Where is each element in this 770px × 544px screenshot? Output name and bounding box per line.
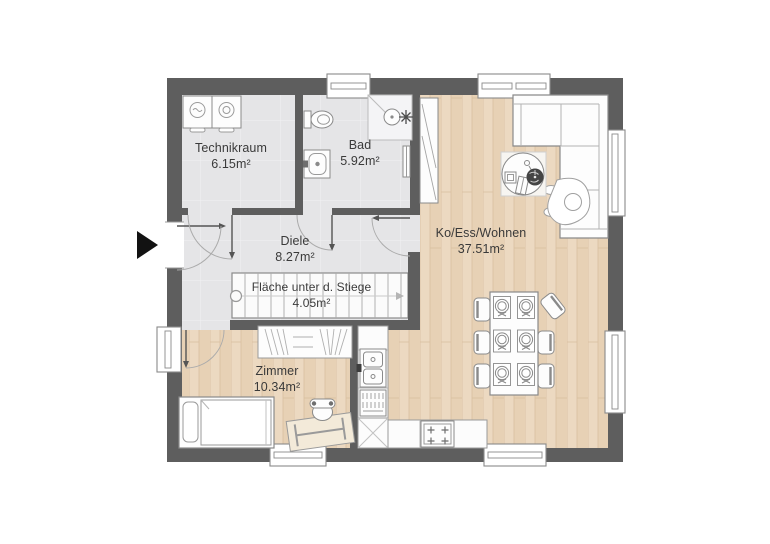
plant-icon <box>527 169 544 186</box>
place-setting-icon <box>518 297 535 319</box>
toilet-icon <box>304 111 333 128</box>
place-setting-icon <box>518 330 535 352</box>
wall-diele-seg2 <box>232 208 297 215</box>
towel-radiator-icon <box>403 146 410 177</box>
wall-stiege-wohnen <box>408 252 420 330</box>
floor-plan-canvas <box>0 0 770 544</box>
wall-diele-seg1 <box>182 208 188 215</box>
wall-top <box>167 78 623 95</box>
window-icon-bad-top <box>327 74 370 98</box>
chair-icon <box>474 364 490 388</box>
chair-icon <box>538 364 554 388</box>
window-icon-wohnen-bottom <box>484 444 546 466</box>
floor-plan: Technikraum 6.15m² Bad 5.92m² Diele 8.27… <box>0 0 770 544</box>
washbasin-icon <box>303 150 330 178</box>
corner-cabinet-icon <box>358 418 388 448</box>
place-setting-icon <box>494 364 511 386</box>
technikraum-fixtures <box>183 96 241 132</box>
dining-set <box>474 292 567 395</box>
chair-icon <box>474 331 490 354</box>
tall-cabinet-icon <box>420 98 438 203</box>
entrance-arrow-icon <box>137 231 158 259</box>
wall-technikraum-bad <box>295 95 303 215</box>
bed-icon <box>179 397 274 448</box>
stairs-start-circle <box>231 291 242 302</box>
place-setting-icon <box>518 364 535 386</box>
kitchen-sink-icon <box>357 349 387 387</box>
window-icon-zimmer-left <box>157 327 181 372</box>
dryer-icon <box>212 96 241 132</box>
dishwasher-icon <box>360 390 386 416</box>
floors <box>182 95 608 448</box>
cooktop-icon <box>421 421 454 447</box>
shower-icon <box>368 95 413 140</box>
wall-bottom <box>167 448 623 462</box>
coffee-table-icon <box>501 152 546 196</box>
window-icon-wohnen-right-lower <box>605 331 625 413</box>
washing-machine-icon <box>183 96 212 132</box>
wall-diele-seg3 <box>332 208 420 215</box>
chair-icon <box>538 331 554 354</box>
chair-icon <box>474 298 490 321</box>
place-setting-icon <box>494 330 511 352</box>
wardrobe-icon <box>258 326 352 358</box>
place-setting-icon <box>494 297 511 319</box>
entrance-opening <box>165 222 184 268</box>
stairs-icon <box>231 273 409 318</box>
